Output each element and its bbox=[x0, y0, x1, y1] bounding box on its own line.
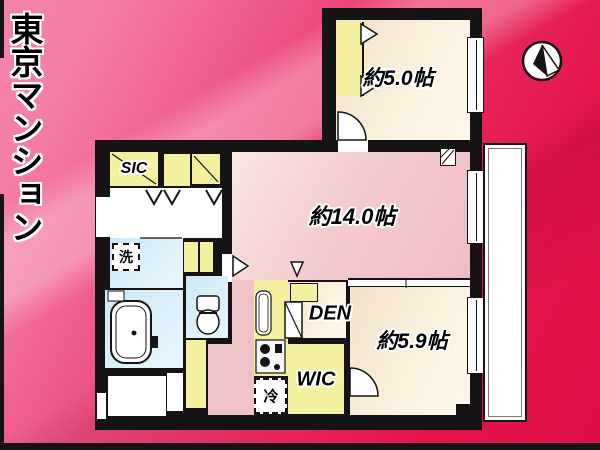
kitchen-unit bbox=[254, 280, 288, 376]
balcony-inner-line bbox=[488, 148, 522, 417]
washer-label: 洗 bbox=[119, 247, 133, 267]
entry-door-panel bbox=[166, 372, 184, 412]
hall-cupboard-2 bbox=[200, 242, 213, 272]
photo-edge-bottom-left bbox=[0, 194, 4, 450]
compass-needle-light bbox=[542, 45, 559, 76]
hallway-floor bbox=[110, 188, 222, 238]
wic-label: WIC bbox=[297, 369, 336, 392]
den-shelf bbox=[290, 283, 318, 302]
photo-edge-bottom bbox=[0, 443, 600, 450]
compass-needle-dark bbox=[533, 45, 547, 76]
bedroom-small-closet bbox=[336, 22, 364, 96]
floor-plan-flyer: 東京マンション bbox=[0, 0, 600, 450]
kitchen-back-counter bbox=[186, 340, 206, 408]
ldk-label: 約14.0帖 bbox=[309, 199, 396, 231]
entrance-door-gap bbox=[96, 197, 110, 237]
compass-icon bbox=[523, 42, 561, 80]
refrigerator-label: 冷 bbox=[263, 386, 278, 407]
photo-edge-top-left bbox=[0, 0, 4, 58]
property-title: 東京マンション bbox=[8, 12, 41, 243]
bedroom-small-window bbox=[467, 37, 484, 113]
ldk-floor-ext2 bbox=[208, 344, 254, 415]
sic-label: SIC bbox=[121, 160, 148, 178]
hall-closet-2 bbox=[192, 154, 220, 184]
bedroom-medium-window bbox=[467, 297, 484, 374]
hall-closet-1 bbox=[164, 154, 190, 186]
entry-step bbox=[96, 392, 107, 420]
wall-jog bbox=[456, 404, 482, 418]
pipe-space-box bbox=[440, 148, 456, 166]
balcony bbox=[483, 143, 527, 422]
hall-cupboard-1 bbox=[184, 242, 198, 272]
bedroom-medium-label: 約5.9帖 bbox=[376, 325, 447, 355]
ldk-floor-ext1 bbox=[232, 280, 254, 346]
ldk-window bbox=[467, 170, 484, 244]
bedroom-small-label: 約5.0帖 bbox=[362, 62, 433, 92]
toilet-room-floor bbox=[186, 276, 228, 338]
den-label: DEN bbox=[309, 303, 351, 326]
entry-room-floor bbox=[108, 376, 166, 416]
bathroom-floor bbox=[105, 290, 183, 368]
